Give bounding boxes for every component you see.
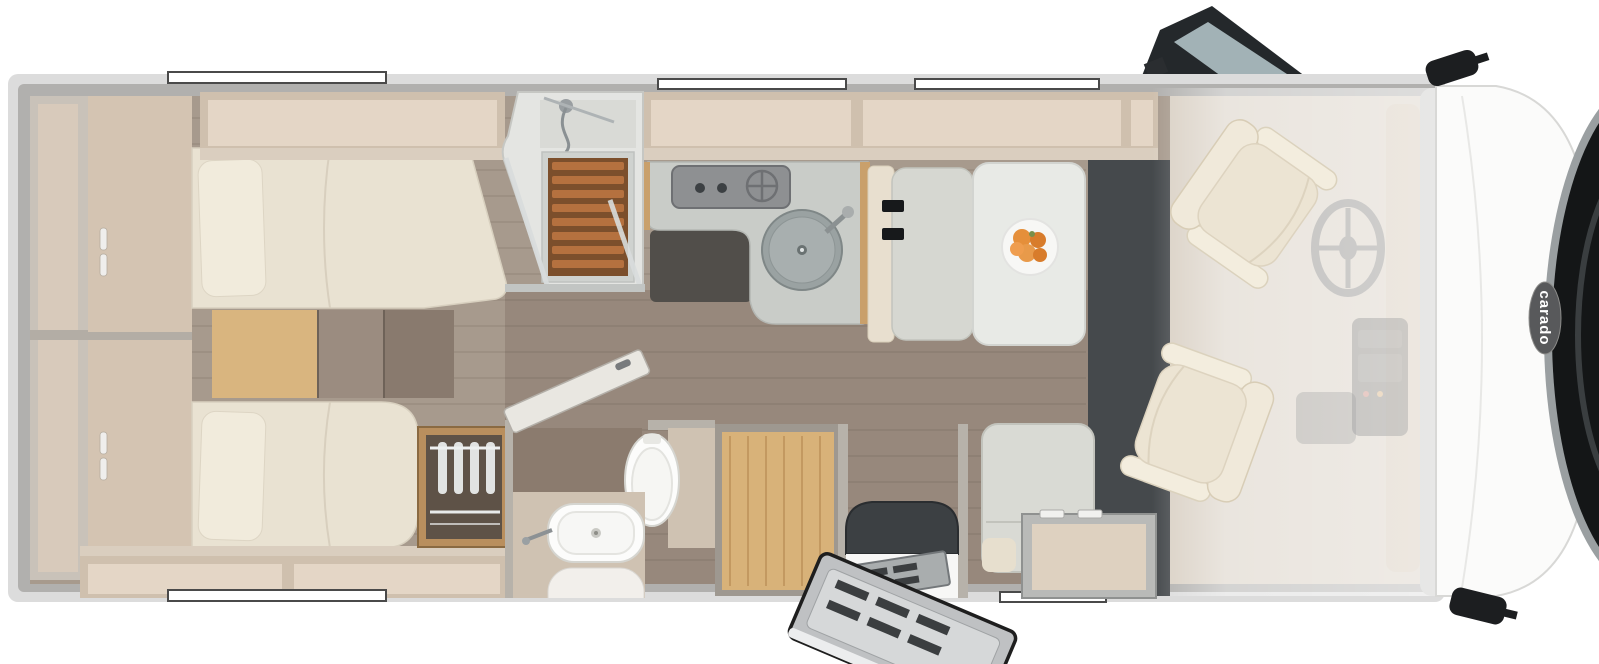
window-top-dinette [915, 79, 1099, 89]
duckboard-slat [552, 176, 624, 184]
cabinet-interior [1131, 100, 1153, 146]
twin-bed-bottom [192, 402, 418, 548]
bathroom-wall-left [505, 420, 513, 598]
floorplan-svg: carado [0, 0, 1599, 664]
gold-trim-left [644, 162, 650, 230]
window-bottom-rear [168, 590, 386, 601]
cabinet-lip [200, 148, 505, 160]
faucet-base [522, 537, 530, 545]
cabinet-handle [100, 228, 107, 250]
dinette [868, 163, 1085, 345]
sink-drain-cap [800, 248, 804, 252]
cabinet-handle [100, 458, 107, 480]
clothes-hanger [486, 442, 495, 494]
orange-fruit [1033, 248, 1047, 262]
bed-steps [212, 310, 454, 398]
cabinet-interior [863, 100, 1121, 146]
overhead-cabinets-top [200, 92, 1158, 160]
kitchen [644, 162, 870, 324]
duckboard-slat [552, 218, 624, 226]
headrest-bracket [882, 228, 904, 240]
duckboard-slat [552, 246, 624, 254]
cabinet-interior [208, 100, 497, 146]
twin-bed-top [192, 148, 507, 308]
clothes-hanger [454, 442, 463, 494]
headboard-divider [88, 332, 192, 340]
cabinet-handle [100, 254, 107, 276]
window-top-kitchen [658, 79, 846, 89]
basin-drain-hole [594, 531, 598, 535]
storage-box [1022, 510, 1156, 598]
wardrobe [418, 427, 510, 547]
door-recess [846, 502, 958, 554]
step-mid [318, 310, 384, 398]
seat-cushion-corner [982, 538, 1016, 572]
step-low [384, 310, 454, 398]
box-hinge [1040, 510, 1064, 518]
cabinet-interior [651, 100, 851, 146]
bench-backrest [868, 166, 894, 342]
stove-knob [695, 183, 705, 193]
step-platform [212, 310, 318, 398]
window-top-rear [168, 72, 386, 83]
box-hinge [1078, 510, 1102, 518]
box-interior [1032, 524, 1146, 590]
pillow [198, 411, 266, 541]
duckboard-slat [552, 232, 624, 240]
counter-recess [650, 230, 752, 302]
pillow [198, 159, 267, 297]
fruit-leaf [1029, 231, 1035, 237]
orange-fruit [1010, 242, 1024, 256]
duckboard-slat [552, 190, 624, 198]
duckboard-slat [552, 260, 624, 268]
rear-storage [30, 96, 192, 580]
toilet-hinge [643, 434, 661, 444]
cabinet-handle [100, 432, 107, 454]
shower-wall-top [540, 100, 636, 148]
cab [1118, 88, 1448, 596]
duckboard-slat [552, 162, 624, 170]
stove-knob [717, 183, 727, 193]
bench-cushion [892, 168, 973, 340]
shower-threshold [505, 284, 645, 292]
faucet-head [842, 206, 854, 218]
clothes-hanger [438, 442, 447, 494]
headrest-bracket [882, 200, 904, 212]
rear-shelf-divider [30, 330, 88, 340]
cabinet-lip [643, 148, 1158, 160]
clothes-hanger [470, 442, 479, 494]
logo-text: carado [1536, 290, 1553, 345]
motorhome-floorplan: carado [0, 0, 1599, 664]
brand-logo: carado [1529, 282, 1561, 354]
doorway-wall-right [958, 424, 968, 598]
